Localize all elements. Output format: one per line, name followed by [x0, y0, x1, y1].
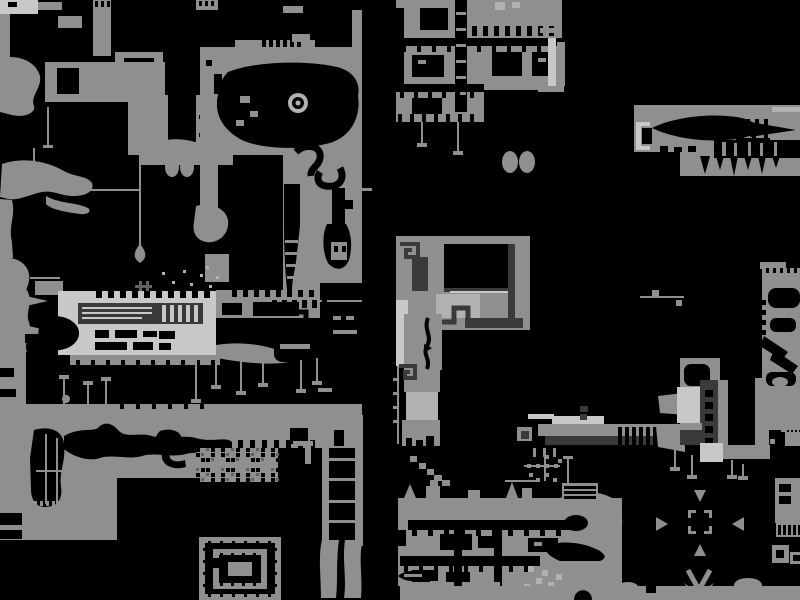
map-shape [287, 276, 295, 279]
map-shape [564, 496, 596, 499]
map-shape [416, 440, 423, 452]
speckle [231, 473, 234, 476]
comb-tick [203, 548, 207, 551]
comb-tick [442, 92, 446, 98]
map-shape [640, 296, 684, 298]
comb-tick [58, 501, 61, 506]
constellation [529, 473, 533, 477]
hanging-wire [316, 358, 318, 382]
comb-tick [524, 530, 529, 536]
speckle [261, 478, 265, 482]
speckle [261, 453, 265, 457]
map-shape [0, 530, 22, 539]
map-shape [222, 303, 242, 315]
target-reticle [688, 526, 691, 534]
comb-tick [121, 360, 125, 367]
sparkles [190, 283, 193, 286]
map-shape [772, 377, 788, 387]
comb-tick [404, 566, 408, 572]
comb-tick [238, 440, 243, 448]
comb-tick [211, 360, 215, 367]
comb-tick [527, 26, 532, 36]
map-shape [688, 146, 696, 152]
map-shape [636, 146, 650, 150]
drop [519, 151, 535, 173]
comb-tick [232, 593, 235, 597]
map-shape [734, 578, 762, 592]
comb-tick [639, 427, 643, 445]
map-shape [426, 486, 440, 500]
comb-tick [192, 291, 198, 298]
map-shape [135, 285, 152, 288]
comb-tick [203, 560, 207, 563]
comb-tick [96, 291, 102, 298]
map-shape [143, 331, 157, 337]
dot [542, 570, 548, 576]
speckle [261, 473, 265, 477]
comb-tick [410, 114, 414, 122]
speckle [221, 473, 225, 477]
map-shape [567, 458, 569, 484]
map-shape [734, 143, 737, 156]
comb-tick [766, 268, 769, 273]
comb-tick [256, 593, 259, 597]
speckle [211, 473, 215, 477]
map-shape [408, 520, 570, 530]
map-shape [396, 84, 484, 92]
comb-tick [220, 582, 223, 586]
map-shape [580, 406, 588, 412]
dock-bracket [636, 124, 641, 148]
map-shape [280, 344, 310, 349]
large-room [444, 244, 510, 290]
comb-tick [793, 525, 796, 535]
ladder-shaft [355, 415, 363, 546]
sparkles [162, 272, 165, 275]
hanging-wire [105, 380, 107, 404]
map-shape [660, 146, 668, 152]
speckle [246, 478, 250, 482]
comb-tick [456, 76, 466, 79]
map-shape [760, 143, 763, 156]
map-shape [296, 101, 301, 106]
speckle [276, 468, 280, 472]
map-shape [792, 552, 800, 555]
speckle [246, 468, 249, 471]
comb-tick [417, 46, 421, 52]
map-shape [58, 16, 82, 28]
comb-tick [254, 290, 259, 297]
map-shape [412, 257, 428, 291]
map-shape [45, 434, 47, 504]
comb-tick [449, 566, 453, 572]
dot [556, 574, 562, 580]
speckle [251, 458, 255, 462]
comb-tick [166, 360, 170, 367]
comb-tick [705, 414, 713, 421]
comb-tick [400, 92, 404, 98]
map-shape [213, 558, 219, 568]
comb-tick [46, 501, 49, 506]
hanging-wire [674, 448, 676, 468]
map-shape [285, 252, 297, 255]
comb-tick [208, 541, 211, 545]
map-shape [292, 34, 310, 42]
map-shape [43, 145, 53, 148]
comb-tick [505, 26, 510, 36]
comb-tick [256, 541, 259, 545]
map-shape [305, 446, 311, 464]
comb-tick [762, 300, 766, 305]
speckle [231, 468, 235, 472]
speckle [206, 468, 210, 472]
map-shape [333, 316, 341, 320]
map-shape [57, 68, 79, 94]
comb-tick [184, 404, 188, 409]
comb-tick [537, 46, 541, 52]
map-shape [495, 2, 505, 10]
comb-tick [447, 46, 451, 52]
comb-tick [434, 114, 438, 122]
comb-tick [773, 268, 776, 273]
map-shape [430, 581, 446, 588]
comb-tick [265, 290, 270, 297]
comb-tick [398, 114, 402, 122]
comb-tick [132, 291, 138, 298]
map-shape [718, 380, 728, 446]
map-shape [62, 395, 70, 403]
map-shape [90, 189, 140, 191]
comb-tick [540, 530, 545, 536]
comb-tick [618, 427, 622, 445]
map-shape [334, 430, 344, 446]
comb-tick [232, 541, 235, 545]
speckle [251, 468, 255, 472]
comb-tick [136, 360, 140, 367]
comb-tick [446, 114, 450, 122]
map-shape [344, 540, 363, 598]
map-shape [400, 556, 540, 566]
sparkles [209, 285, 212, 288]
sparkles [216, 276, 219, 279]
map-shape [564, 515, 588, 531]
hanging-wire [742, 464, 744, 477]
comb-tick [285, 364, 289, 371]
map-shape [25, 334, 55, 343]
map-shape [430, 480, 438, 487]
map-shape [38, 2, 62, 10]
map-shape [352, 10, 362, 58]
wire-tab [727, 475, 737, 479]
map-shape [512, 2, 520, 8]
comb-tick [276, 40, 280, 47]
wire-tab [312, 381, 322, 385]
map-shape [541, 478, 544, 498]
wire-tab [670, 467, 680, 471]
speckle [271, 468, 274, 471]
comb-tick [625, 427, 629, 445]
comb-tick [203, 584, 207, 587]
comb-tick [476, 530, 481, 536]
speckle [256, 468, 260, 472]
speckle [226, 458, 230, 462]
comb-tick [181, 360, 185, 367]
map-shape [652, 290, 659, 297]
speckle [246, 448, 250, 452]
dot [528, 566, 534, 572]
speckle [261, 448, 265, 452]
map-shape [534, 542, 542, 546]
comb-tick [40, 501, 43, 506]
map-shape [420, 8, 448, 30]
comb-tick [302, 300, 307, 308]
map-shape [345, 200, 353, 209]
map-shape [700, 443, 723, 462]
map-shape [214, 74, 222, 94]
comb-tick [705, 426, 713, 433]
map-shape [200, 150, 218, 210]
comb-tick [780, 268, 783, 273]
map-shape [419, 463, 426, 469]
comb-tick [705, 390, 713, 397]
map-shape [236, 120, 244, 126]
comb-tick [243, 290, 248, 297]
speckle [256, 448, 259, 451]
comb-tick [507, 46, 511, 52]
comb-tick [524, 566, 528, 572]
map-shape [538, 58, 546, 62]
comb-tick [298, 290, 303, 297]
comb-tick [553, 448, 556, 457]
drop [180, 157, 194, 177]
comb-tick [101, 1, 104, 7]
comb-tick [764, 119, 768, 128]
map-shape [318, 388, 332, 392]
sparkles [206, 266, 209, 269]
map-shape [396, 38, 562, 46]
speckle [271, 448, 275, 452]
speckle [221, 468, 224, 471]
map-shape [398, 530, 406, 546]
comb-tick [242, 582, 245, 586]
map-shape [768, 288, 800, 308]
comb-tick [428, 92, 432, 98]
comb-tick [393, 420, 397, 423]
speckle [211, 478, 215, 482]
map-shape [722, 142, 726, 156]
wire-tab [258, 383, 268, 387]
comb-tick [232, 290, 237, 297]
comb-tick [273, 560, 277, 563]
map-shape [522, 488, 532, 499]
map-shape [772, 107, 800, 112]
map-shape [779, 484, 791, 492]
light-block [0, 0, 38, 14]
hanging-wire [262, 358, 264, 384]
map-shape [774, 142, 777, 156]
map-shape [680, 430, 702, 445]
speckle [201, 468, 205, 472]
map-shape [764, 130, 768, 141]
comb-tick [244, 541, 247, 545]
hanging-wire [215, 356, 217, 386]
spiral-core [228, 562, 252, 576]
comb-tick [269, 40, 273, 47]
map-shape [286, 264, 296, 267]
comb-tick [494, 26, 499, 36]
comb-tick [322, 300, 327, 308]
comb-tick [412, 530, 417, 536]
map-shape [328, 458, 356, 461]
comb-tick [283, 40, 287, 47]
hanging-wire [300, 360, 302, 390]
map-shape [564, 491, 596, 494]
wire-tab [236, 391, 246, 395]
hanging-wire [87, 384, 89, 404]
map-shape [468, 490, 480, 500]
speckle [251, 478, 254, 481]
comb-tick [287, 290, 292, 297]
comb-tick [170, 305, 174, 322]
sparkles [200, 274, 203, 277]
map-canvas[interactable] [0, 0, 800, 600]
speckle [271, 473, 275, 477]
map-shape [714, 140, 800, 158]
speckle [231, 448, 234, 451]
speckle [206, 458, 210, 462]
map-shape [676, 300, 682, 306]
speckle [271, 453, 275, 457]
comb-tick [762, 330, 766, 335]
comb-tick [168, 404, 172, 409]
comb-tick [156, 291, 162, 298]
boot-cavern [30, 428, 64, 507]
comb-tick [268, 593, 271, 597]
wire-tab [738, 476, 748, 480]
speckle [261, 458, 264, 461]
comb-tick [273, 548, 277, 551]
comb-tick [393, 378, 397, 381]
comb-tick [755, 119, 759, 128]
comb-tick [205, 1, 208, 6]
comb-tick [162, 305, 166, 322]
speckle [276, 478, 279, 481]
map-shape [618, 582, 638, 592]
map-shape [418, 60, 426, 64]
map-shape [779, 496, 791, 504]
comb-tick [432, 46, 436, 52]
wire-tab [417, 143, 427, 147]
comb-tick [253, 553, 256, 557]
comb-tick [144, 291, 150, 298]
speckle [201, 453, 204, 456]
comb-tick [200, 404, 204, 409]
map-shape [93, 0, 111, 56]
comb-tick [472, 26, 477, 36]
comb-tick [152, 404, 156, 409]
comb-tick [470, 92, 474, 98]
comb-tick [34, 501, 37, 506]
map-shape [557, 42, 565, 86]
speckle [236, 473, 240, 477]
map-shape [442, 480, 450, 486]
constellation [553, 478, 557, 482]
comb-tick [95, 1, 98, 7]
map-shape [332, 188, 345, 226]
map-shape [488, 582, 500, 588]
map-shape [334, 246, 338, 252]
hanging-wire [691, 455, 693, 476]
comb-tick [312, 300, 317, 308]
speckle [236, 453, 240, 457]
comb-tick [402, 46, 406, 52]
map-shape [293, 441, 313, 446]
map-shape [508, 244, 515, 326]
map-shape [776, 550, 784, 558]
map-shape [159, 331, 175, 339]
comb-tick [274, 440, 279, 448]
comb-tick [762, 320, 766, 325]
map-shape [427, 469, 434, 475]
speckle [196, 448, 200, 452]
comb-tick [199, 1, 202, 6]
hanging-wire [457, 122, 459, 152]
map-shape [352, 188, 372, 191]
comb-tick [108, 291, 114, 298]
map-shape [36, 470, 62, 472]
comb-tick [794, 268, 797, 273]
map-shape [139, 152, 141, 246]
comb-tick [203, 572, 207, 575]
head-cavern [217, 63, 359, 148]
map-shape [564, 486, 596, 489]
hanging-wire [731, 460, 733, 476]
comb-tick [220, 553, 223, 557]
map-shape [33, 148, 35, 161]
wire-tab [211, 385, 221, 389]
map-shape [740, 130, 744, 141]
comb-tick [456, 12, 466, 15]
comb-tick [107, 1, 110, 7]
map-shape [250, 111, 258, 117]
map-shape [748, 142, 751, 157]
map-shape [346, 316, 354, 320]
comb-tick [250, 440, 255, 448]
map-shape [283, 6, 303, 13]
speckle [221, 478, 225, 482]
comb-tick [273, 572, 277, 575]
map-shape [700, 380, 718, 446]
hanging-wire [240, 360, 242, 392]
map-shape [426, 436, 434, 450]
comb-tick [456, 92, 460, 98]
map-shape [333, 330, 357, 334]
comb-tick [456, 28, 466, 31]
comb-tick [393, 406, 397, 409]
drop [502, 151, 518, 173]
comb-tick [492, 46, 496, 52]
wire-tab [191, 399, 201, 403]
comb-tick [494, 566, 498, 572]
speckle [276, 458, 280, 462]
speckle [271, 478, 275, 482]
comb-tick [428, 530, 433, 536]
comb-tick [294, 364, 298, 371]
speckle [246, 453, 250, 457]
speckle [201, 478, 204, 481]
map-shape [0, 389, 16, 397]
comb-tick [136, 404, 140, 409]
